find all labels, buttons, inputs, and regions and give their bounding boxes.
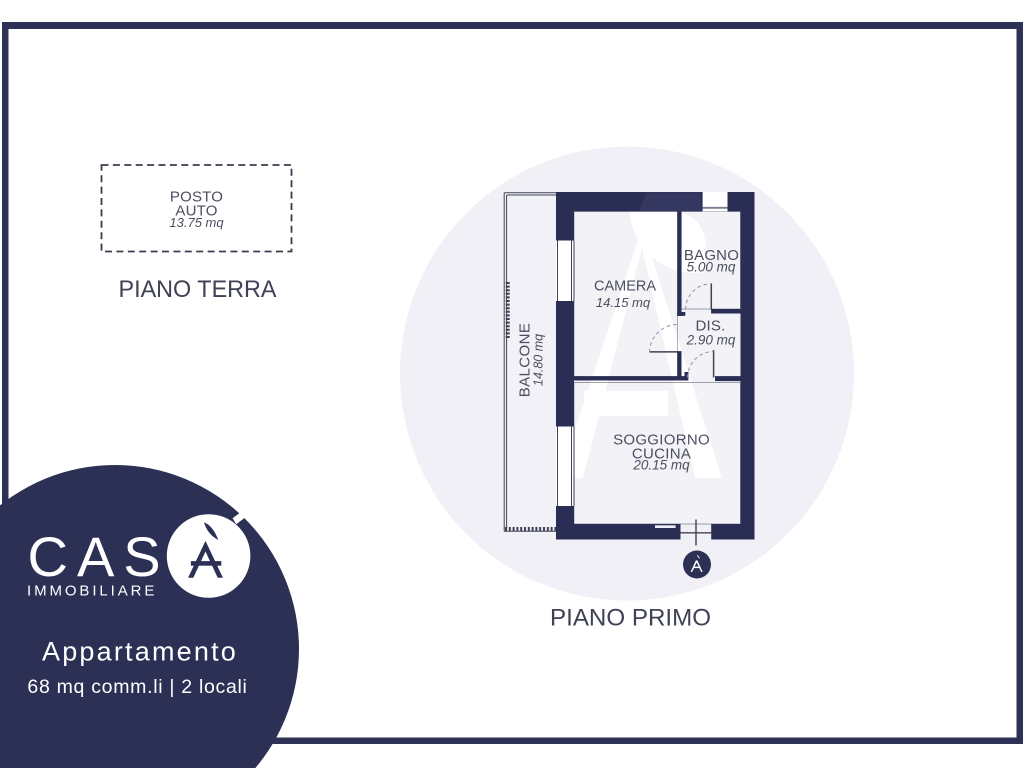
svg-text:IMMOBILIARE: IMMOBILIARE: [27, 583, 157, 600]
svg-text:CAMERA: CAMERA: [594, 279, 656, 295]
svg-text:14.15 mq: 14.15 mq: [596, 295, 651, 310]
svg-text:CAS: CAS: [28, 525, 170, 588]
svg-text:Appartamento: Appartamento: [42, 637, 238, 667]
svg-text:20.15 mq: 20.15 mq: [632, 458, 690, 473]
svg-text:13.75 mq: 13.75 mq: [169, 215, 224, 230]
svg-text:68 mq comm.li | 2 locali: 68 mq comm.li | 2 locali: [27, 676, 247, 698]
svg-text:2.90 mq: 2.90 mq: [686, 333, 736, 348]
svg-text:5.00 mq: 5.00 mq: [687, 260, 736, 275]
svg-text:14.80 mq: 14.80 mq: [532, 334, 546, 386]
svg-text:PIANO PRIMO: PIANO PRIMO: [550, 605, 711, 632]
svg-text:PIANO TERRA: PIANO TERRA: [119, 276, 277, 303]
